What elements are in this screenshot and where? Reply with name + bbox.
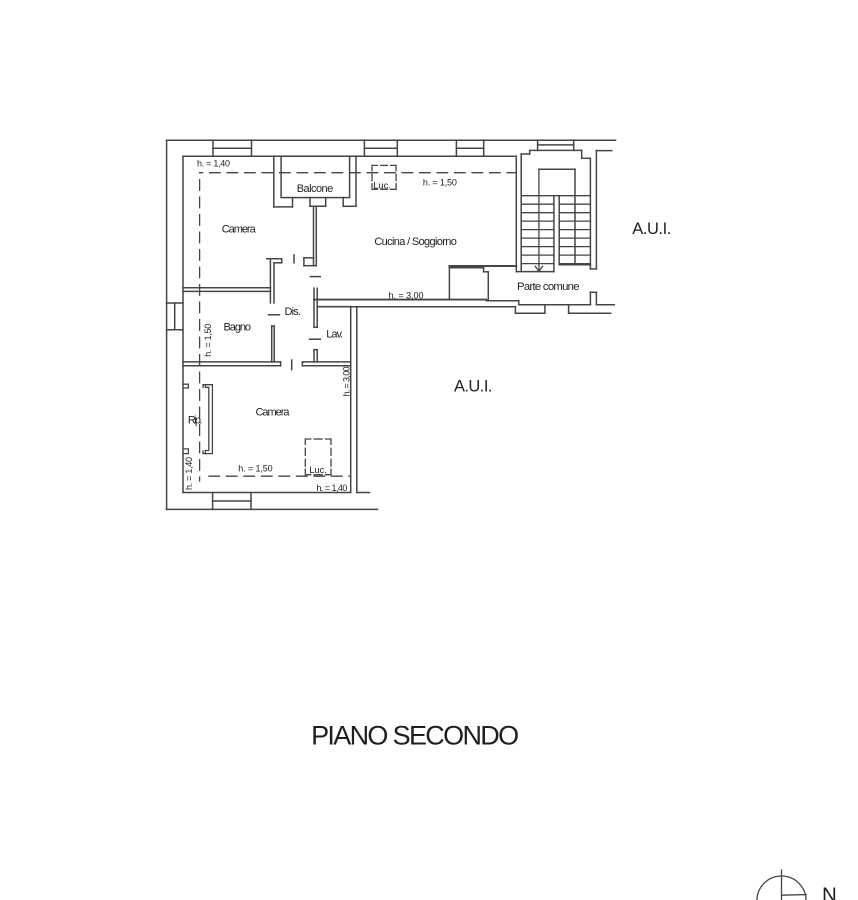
svg-text:Camera: Camera — [222, 224, 257, 236]
svg-text:Rip.: Rip. — [188, 415, 203, 427]
svg-text:Parte comune: Parte comune — [517, 281, 580, 293]
svg-text:Luc.: Luc. — [309, 465, 327, 476]
svg-text:h. = 1,50: h. = 1,50 — [423, 178, 457, 188]
svg-text:PIANO SECONDO: PIANO SECONDO — [311, 721, 519, 751]
svg-text:Camera: Camera — [256, 406, 291, 418]
svg-text:Bagno: Bagno — [224, 322, 251, 334]
svg-text:h. = 3,00: h. = 3,00 — [389, 291, 424, 301]
svg-text:h. = 1,50: h. = 1,50 — [203, 324, 213, 357]
svg-text:h. = 1,40: h. = 1,40 — [197, 158, 230, 168]
svg-text:Luc.: Luc. — [373, 181, 391, 192]
svg-text:h. = 1,50: h. = 1,50 — [238, 464, 273, 474]
svg-text:Balcone: Balcone — [297, 183, 334, 195]
svg-text:N: N — [822, 884, 837, 900]
svg-text:h. = 3,00: h. = 3,00 — [342, 366, 352, 396]
svg-text:Dis.: Dis. — [285, 306, 302, 318]
svg-text:h. = 1,40: h. = 1,40 — [316, 483, 347, 493]
svg-text:Lav.: Lav. — [326, 329, 343, 341]
svg-text:A.U.I.: A.U.I. — [454, 378, 493, 396]
svg-text:A.U.I.: A.U.I. — [632, 220, 671, 238]
svg-text:Cucina / Soggiorno: Cucina / Soggiorno — [374, 236, 457, 248]
svg-text:h. = 1,40: h. = 1,40 — [184, 457, 194, 490]
